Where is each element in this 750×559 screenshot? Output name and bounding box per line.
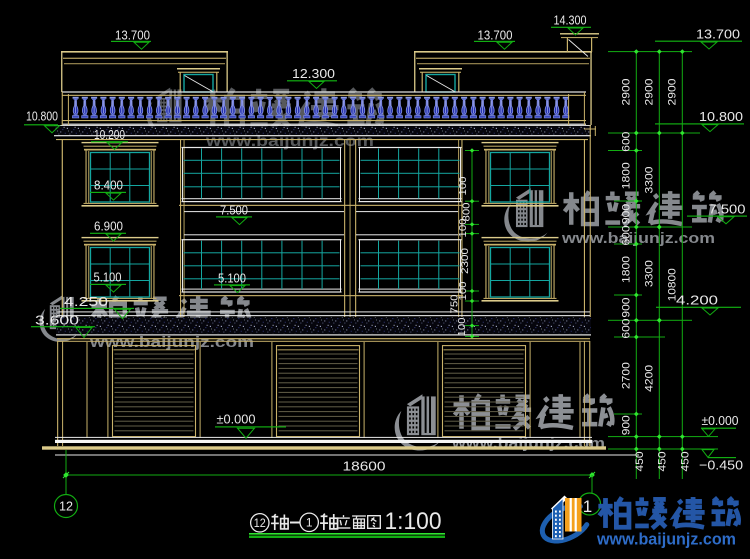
svg-text:1: 1 [583,497,592,516]
svg-text:2300: 2300 [459,248,471,274]
svg-text:4.200: 4.200 [676,293,718,308]
svg-text:7.500: 7.500 [220,204,248,218]
svg-text:4.250: 4.250 [64,294,108,309]
svg-text:600: 600 [621,319,633,339]
svg-text:14.300: 14.300 [554,14,587,28]
svg-text:450: 450 [634,452,646,472]
svg-text:100: 100 [457,176,469,195]
svg-text:www.baijunjz.com: www.baijunjz.com [596,531,736,549]
svg-text:10.800: 10.800 [26,110,58,124]
svg-text:www.baijunjz.com: www.baijunjz.com [89,334,254,351]
svg-text:100: 100 [456,317,468,336]
svg-text:−0.450: −0.450 [699,458,743,473]
svg-text:13.700: 13.700 [696,27,740,42]
svg-text:8.400: 8.400 [94,179,123,193]
svg-text:13.700: 13.700 [115,29,150,43]
svg-text:450: 450 [680,452,692,472]
svg-text:2900: 2900 [667,79,679,106]
svg-text:18600: 18600 [343,459,386,474]
svg-text:6.900: 6.900 [94,220,123,234]
svg-text:±0.000: ±0.000 [702,413,739,428]
svg-text:1:100: 1:100 [385,508,442,535]
svg-text:900: 900 [621,415,633,435]
svg-text:1800: 1800 [621,162,633,189]
svg-text:2900: 2900 [644,79,656,106]
svg-text:1: 1 [306,516,313,530]
svg-text:12.300: 12.300 [292,66,335,81]
svg-text:3.600: 3.600 [35,313,79,328]
svg-text:13.700: 13.700 [478,29,513,43]
svg-text:2700: 2700 [621,362,633,389]
svg-text:10.800: 10.800 [699,109,743,124]
svg-text:2900: 2900 [621,79,633,106]
svg-text:750: 750 [449,294,461,313]
svg-text:1800: 1800 [621,256,633,283]
svg-text:3300: 3300 [644,260,656,287]
svg-text:3300: 3300 [644,167,656,194]
svg-text:600: 600 [621,226,633,246]
svg-text:10.200: 10.200 [94,128,125,142]
svg-text:450: 450 [657,452,669,472]
svg-text:4200: 4200 [644,365,656,392]
svg-text:7.500: 7.500 [709,202,746,217]
svg-text:600: 600 [621,132,633,152]
svg-text:12: 12 [59,499,73,514]
svg-text:12: 12 [254,518,266,530]
svg-text:5.100: 5.100 [218,272,246,286]
svg-text:900: 900 [621,298,633,318]
svg-text:100: 100 [457,218,469,237]
svg-text:±0.000: ±0.000 [217,412,256,427]
svg-text:900: 900 [621,204,633,224]
svg-text:5.100: 5.100 [94,271,122,285]
